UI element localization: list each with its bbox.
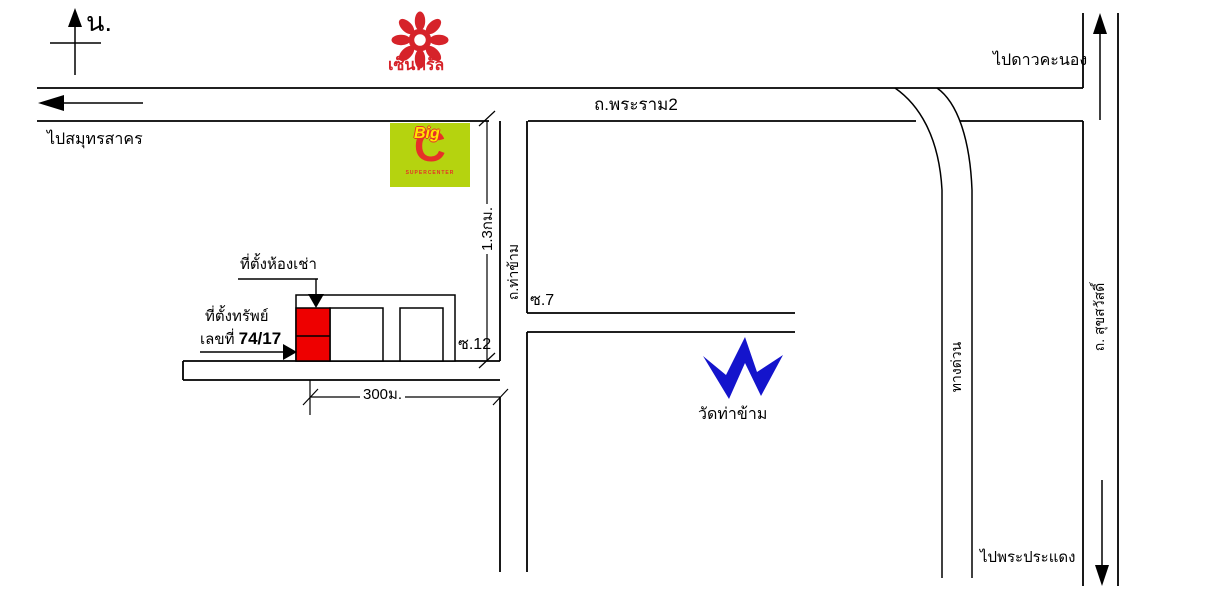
dimension-300m-lines <box>303 380 508 415</box>
west-arrow-icon <box>38 95 64 111</box>
bigc-tagline: SUPERCENTER <box>390 170 470 176</box>
soi12-label: ซ.12 <box>458 336 491 354</box>
bigc-logo: C Big SUPERCENTER <box>390 123 470 187</box>
road-thakham-lines <box>500 121 527 572</box>
map-geometry <box>0 0 1218 615</box>
property-marker <box>296 308 330 361</box>
building-block <box>296 295 455 361</box>
north-road-arrow-icon <box>1093 13 1107 34</box>
north-label: น. <box>86 8 112 38</box>
road-soi12-lines <box>183 361 500 380</box>
property-location-label-line2: เลขที่ 74/17 <box>200 330 281 349</box>
property-number: 74/17 <box>239 329 282 348</box>
road-soi7-lines <box>527 313 795 332</box>
temple-label: วัดท่าข้าม <box>698 406 767 424</box>
dimension-1-3km-label: 1.3กม. <box>475 204 499 254</box>
property-location-label-line1: ที่ตั้งทรัพย์ <box>205 309 269 326</box>
bigc-word-big: Big <box>414 125 440 143</box>
direction-daokanong-label: ไปดาวคะนอง <box>993 52 1087 70</box>
road-rama2-lines <box>37 88 1083 121</box>
road-suksawat-label: ถ. สุขสวัสดิ์ <box>1089 283 1111 351</box>
road-thakham-label: ถ.ท่าข้าม <box>503 244 525 300</box>
property-number-prefix: เลขที่ <box>200 331 234 348</box>
rental-location-label: ที่ตั้งห้องเช่า <box>240 257 317 274</box>
location-map: น. ไปสมุทรสาคร ถ.พระราม2 ไปดาวคะนอง เซ็น… <box>0 0 1218 615</box>
direction-samutsakhon-label: ไปสมุทรสาคร <box>47 131 143 149</box>
dimension-300m-label: 300ม. <box>360 387 405 404</box>
central-logo-label: เซ็นทรัล <box>388 57 444 75</box>
south-road-arrow-icon <box>1095 565 1109 586</box>
expressway-label: ทางด่วน <box>946 342 968 392</box>
pointer-right-arrow-icon <box>283 344 297 360</box>
soi7-label: ซ.7 <box>530 292 554 310</box>
road-expressway-lines <box>895 88 972 578</box>
direction-phrapradaeng-label: ไปพระประแดง <box>980 550 1075 567</box>
road-rama2-label: ถ.พระราม2 <box>594 96 678 115</box>
temple-symbol <box>703 337 783 399</box>
north-arrow-icon <box>68 8 82 27</box>
